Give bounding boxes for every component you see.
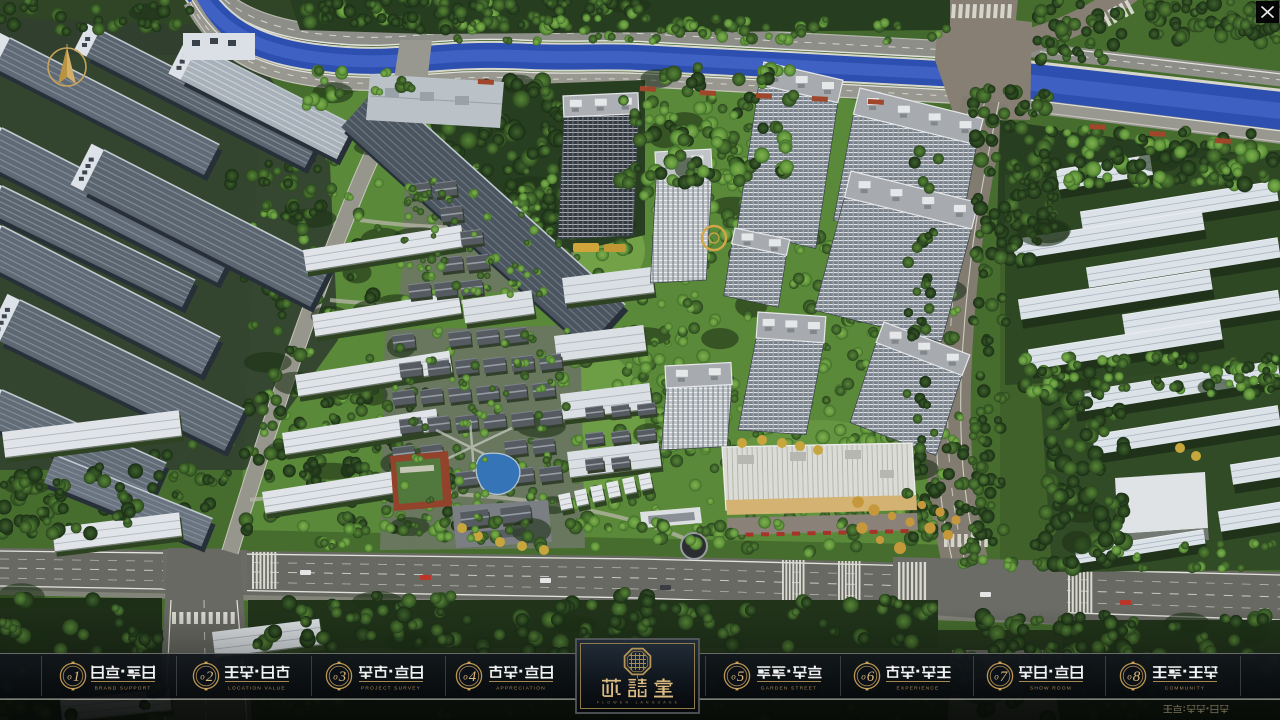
svg-text:APPRECIATION: APPRECIATION (496, 686, 546, 692)
svg-text:GARDEN STREET: GARDEN STREET (761, 686, 817, 692)
svg-text:8: 8 (1133, 669, 1141, 685)
svg-text:o: o (67, 672, 72, 682)
svg-text:LOCATION VALUE: LOCATION VALUE (228, 686, 286, 692)
svg-text:o: o (731, 672, 736, 682)
svg-text:F L O W E R · L A N G U A G E: F L O W E R · L A N G U A G E (597, 701, 678, 705)
svg-text:PROJECT SURVEY: PROJECT SURVEY (361, 686, 421, 692)
svg-text:1: 1 (73, 669, 81, 685)
svg-text:o: o (1127, 672, 1132, 682)
svg-text:2: 2 (206, 669, 214, 685)
svg-text:BRAND SUPPORT: BRAND SUPPORT (95, 686, 152, 692)
svg-text:SHOW ROOM: SHOW ROOM (1030, 686, 1072, 692)
svg-text:6: 6 (867, 669, 875, 685)
svg-text:EXPERIENCE: EXPERIENCE (897, 686, 940, 692)
svg-text:o: o (200, 672, 205, 682)
svg-text:o: o (861, 672, 866, 682)
svg-text:4: 4 (469, 669, 477, 685)
svg-text:o: o (994, 672, 999, 682)
svg-text:o: o (333, 672, 338, 682)
svg-text:o: o (463, 672, 468, 682)
svg-text:3: 3 (338, 669, 347, 685)
svg-text:COMMUNITY: COMMUNITY (1165, 686, 1205, 692)
svg-text:5: 5 (737, 669, 745, 685)
